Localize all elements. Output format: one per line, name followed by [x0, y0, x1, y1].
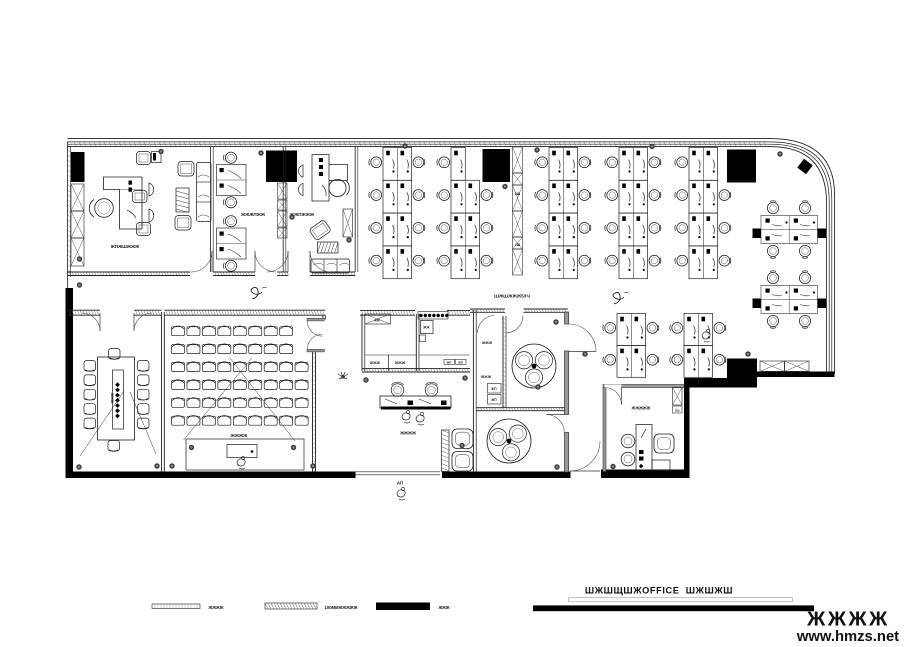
svg-text:ЖЖЖПЖЖ: ЖЖЖПЖЖ	[240, 212, 266, 217]
svg-text:ЖП: ЖП	[446, 360, 452, 364]
svg-text:ЖЖ: ЖЖ	[422, 326, 430, 330]
svg-text:2Ш: 2Ш	[675, 408, 680, 412]
svg-text:ЖЖЖ: ЖЖЖ	[110, 392, 115, 404]
svg-text:АП: АП	[397, 481, 403, 486]
svg-text:2Ш: 2Ш	[515, 192, 521, 196]
svg-text:ЖЖЖ: ЖЖЖ	[394, 361, 406, 365]
svg-text:ЖЖЖ: ЖЖЖ	[369, 361, 381, 365]
svg-text:ЖЖЖЖ: ЖЖЖЖ	[207, 605, 223, 610]
svg-text:ЖП: ЖП	[490, 398, 497, 402]
svg-text:ЖЖЖ: ЖЖЖ	[480, 375, 492, 379]
svg-text:ЖПЖШЖЖЖ: ЖПЖШЖЖЖ	[110, 244, 141, 249]
svg-text:ЖЖ: ЖЖ	[373, 319, 380, 323]
svg-text:ЖЖЖЖЖ: ЖЖЖЖЖ	[631, 406, 651, 411]
svg-text:ЖЖЖЖ: ЖЖЖЖ	[230, 433, 248, 438]
svg-text:www.hmzs.net: www.hmzs.net	[796, 629, 899, 645]
svg-text:ШЖШЩШЖOFFICE ШЖШЖШ: ШЖШЩШЖOFFICE ШЖШЖШ	[585, 586, 733, 596]
svg-text:ЖП: ЖП	[457, 360, 463, 364]
svg-text:2Ш: 2Ш	[515, 243, 521, 247]
svg-text:ШЖШЖЖЖ53Ч: ШЖШЖЖЖ53Ч	[494, 294, 530, 300]
svg-text:100MMЖЖЖЖЖ: 100MMЖЖЖЖЖ	[325, 605, 358, 610]
svg-text:ЖЖЖЖ: ЖЖЖЖ	[806, 609, 890, 631]
svg-text:ЖЖЖ: ЖЖЖ	[481, 341, 493, 345]
svg-text:ЖЖЖ: ЖЖЖ	[437, 605, 450, 610]
svg-text:ЖП: ЖП	[490, 387, 497, 391]
svg-text:ЖЖЖЖ: ЖЖЖЖ	[399, 431, 416, 436]
